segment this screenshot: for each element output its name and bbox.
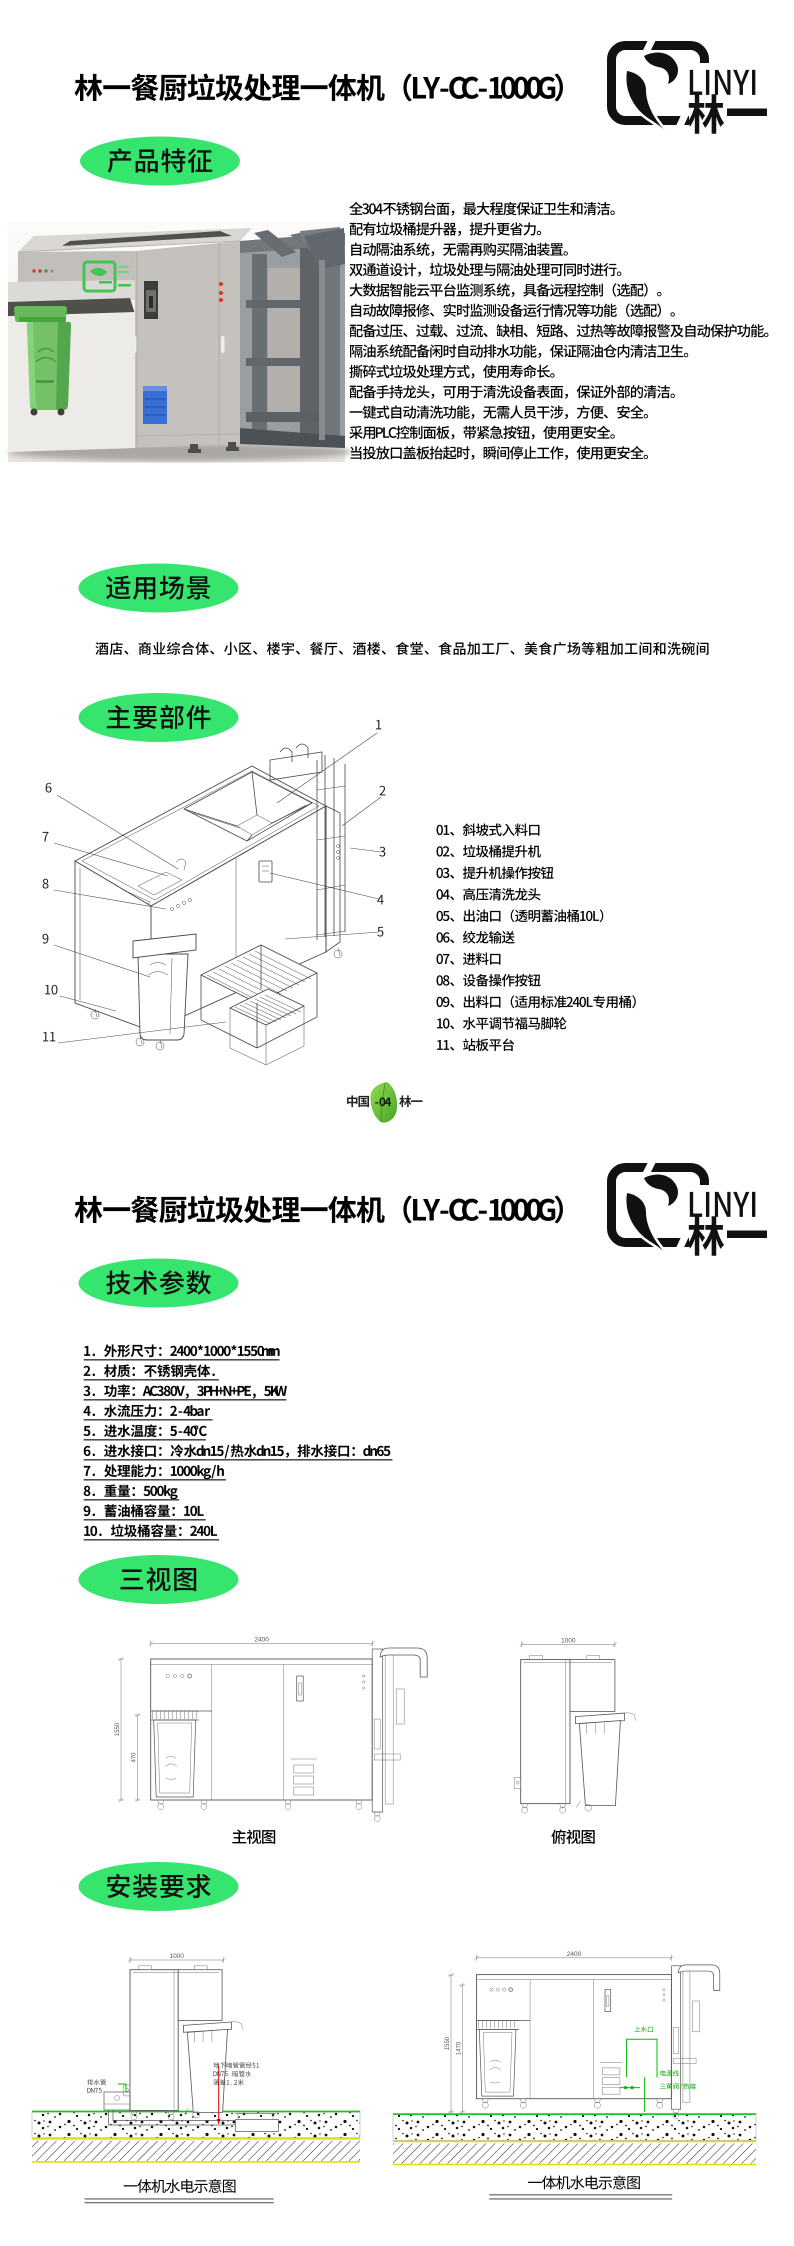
svg-text:1550: 1550 <box>445 2036 451 2050</box>
svg-text:1000: 1000 <box>561 1637 576 1644</box>
svg-text:2400: 2400 <box>254 1637 269 1644</box>
svg-text:1470: 1470 <box>456 2041 462 2055</box>
svg-text:1550: 1550 <box>115 1722 121 1736</box>
svg-text:470: 470 <box>132 1752 138 1763</box>
svg-text:1000: 1000 <box>169 1953 184 1960</box>
svg-text:2400: 2400 <box>567 1951 582 1958</box>
